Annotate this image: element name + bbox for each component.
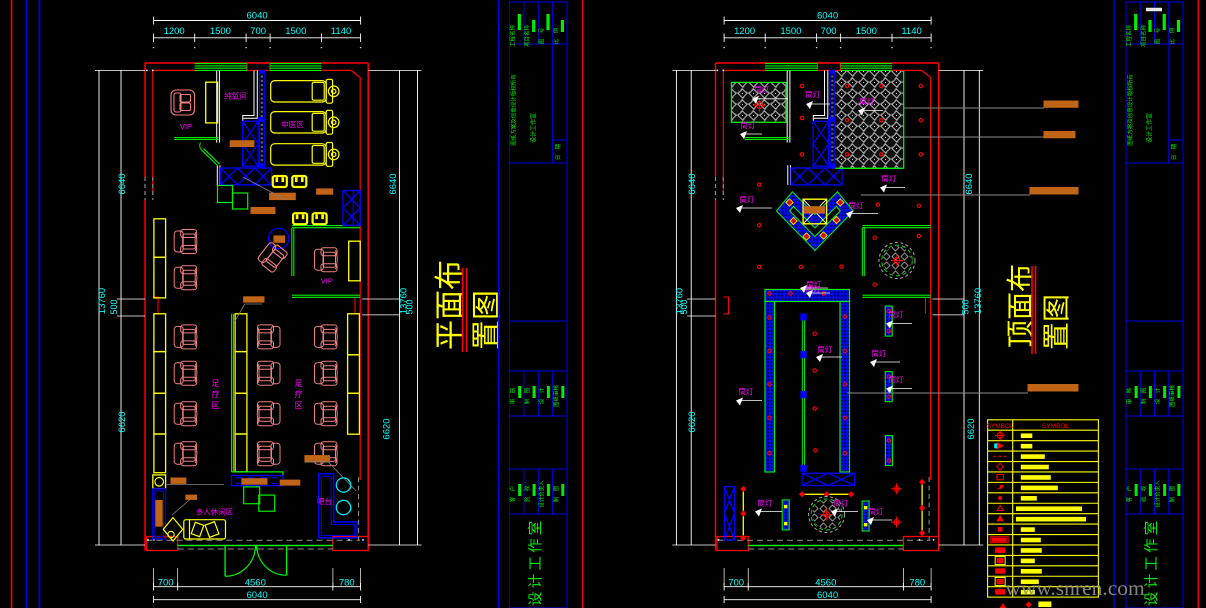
svg-text:6640: 6640 (687, 173, 698, 194)
svg-text:设计负责人: 设计负责人 (537, 480, 545, 508)
svg-text:筒灯: 筒灯 (758, 498, 773, 508)
svg-text:图 号: 图 号 (1154, 27, 1162, 44)
svg-text:图纸方案及创意设计版权所有: 图纸方案及创意设计版权所有 (510, 74, 518, 146)
svg-text:筒灯: 筒灯 (834, 498, 849, 508)
svg-text:吧台: 吧台 (317, 496, 332, 506)
svg-text:700: 700 (158, 577, 174, 588)
svg-text:6040: 6040 (247, 590, 268, 601)
svg-text:设 计: 设 计 (1154, 387, 1162, 404)
svg-text:500: 500 (405, 299, 415, 314)
svg-text:区: 区 (295, 401, 303, 410)
svg-text:6040: 6040 (817, 10, 838, 21)
svg-text:500: 500 (679, 299, 689, 314)
svg-text:工程名称: 工程名称 (509, 25, 517, 48)
svg-text:筒灯: 筒灯 (882, 173, 897, 183)
svg-text:筒灯: 筒灯 (741, 120, 756, 130)
svg-text:筒灯: 筒灯 (889, 374, 904, 384)
svg-text:6040: 6040 (817, 590, 838, 601)
svg-text:项目名称: 项目名称 (1139, 25, 1147, 48)
svg-text:审 核: 审 核 (509, 387, 517, 404)
svg-text:客 户: 客 户 (509, 486, 517, 503)
svg-text:6040: 6040 (247, 10, 268, 21)
svg-text:780: 780 (339, 577, 355, 588)
svg-text:4560: 4560 (815, 577, 836, 588)
svg-text:筒灯: 筒灯 (739, 386, 754, 396)
svg-text:6620: 6620 (117, 411, 128, 432)
svg-text:日 期: 日 期 (1171, 143, 1178, 160)
svg-text:1140: 1140 (331, 26, 351, 37)
svg-text:6620: 6620 (687, 411, 698, 432)
svg-text:验 收: 验 收 (1139, 485, 1147, 502)
svg-text:1200: 1200 (734, 26, 755, 37)
svg-text:VIP: VIP (180, 122, 192, 131)
svg-text:比 例: 比 例 (552, 27, 560, 44)
svg-text:筒灯: 筒灯 (889, 309, 904, 319)
svg-text:验 收: 验 收 (523, 485, 531, 502)
svg-text:审 核: 审 核 (1125, 387, 1133, 404)
svg-text:筒灯: 筒灯 (755, 84, 770, 94)
svg-text:筒灯: 筒灯 (818, 344, 833, 354)
svg-text:图 号: 图 号 (537, 27, 545, 44)
svg-text:设计工作室: 设计工作室 (1144, 518, 1161, 607)
svg-text:筒灯: 筒灯 (872, 348, 887, 358)
svg-text:6640: 6640 (388, 173, 399, 194)
svg-text:客 户: 客 户 (1125, 486, 1133, 503)
svg-text:纯氧间: 纯氧间 (224, 91, 247, 101)
svg-text:工程名称: 工程名称 (1125, 25, 1133, 48)
svg-text:疗: 疗 (295, 389, 303, 399)
svg-text:1500: 1500 (856, 26, 877, 37)
svg-text:13760: 13760 (97, 288, 108, 314)
svg-text:图纸审核: 图纸审核 (1168, 385, 1176, 408)
svg-text:SYMBOL: SYMBOL (1042, 423, 1069, 430)
svg-text:项目名称: 项目名称 (523, 25, 531, 48)
svg-text:www.snren.com: www.snren.com (1005, 576, 1145, 600)
svg-text:设 计: 设 计 (537, 387, 545, 404)
svg-text:1500: 1500 (210, 26, 231, 37)
svg-text:4560: 4560 (245, 577, 266, 588)
svg-text:制 图: 制 图 (1139, 387, 1147, 404)
svg-text:图纸审核: 图纸审核 (552, 385, 560, 408)
svg-text:780: 780 (909, 577, 925, 588)
svg-text:6620: 6620 (382, 418, 393, 439)
svg-text:700: 700 (821, 26, 837, 37)
svg-text:1140: 1140 (901, 26, 921, 37)
svg-text:VIP: VIP (321, 277, 333, 286)
svg-text:设计工作室: 设计工作室 (1146, 113, 1154, 143)
svg-text:6640: 6640 (117, 173, 128, 194)
svg-text:1500: 1500 (285, 26, 306, 37)
svg-text:筒灯: 筒灯 (806, 89, 821, 99)
svg-text:筒灯: 筒灯 (807, 279, 822, 289)
svg-text:设计工作室: 设计工作室 (529, 113, 537, 143)
svg-text:足: 足 (211, 379, 219, 388)
svg-text:比 例: 比 例 (1168, 27, 1176, 44)
svg-text:制 图: 制 图 (523, 387, 531, 404)
svg-text:13760: 13760 (973, 288, 984, 314)
svg-text:6640: 6640 (964, 173, 975, 194)
svg-text:筒灯: 筒灯 (860, 96, 875, 106)
svg-text:500: 500 (109, 299, 119, 314)
svg-text:筒灯: 筒灯 (869, 506, 884, 516)
svg-text:设计工作室: 设计工作室 (527, 518, 544, 607)
svg-text:筒灯: 筒灯 (740, 194, 755, 204)
svg-text:制 图: 制 图 (552, 485, 560, 502)
svg-text:疗: 疗 (211, 389, 219, 399)
svg-text:日 期: 日 期 (555, 143, 562, 160)
svg-text:区: 区 (211, 401, 219, 410)
svg-text:制 图: 制 图 (1168, 485, 1176, 502)
svg-text:SYMBOL: SYMBOL (987, 423, 1014, 430)
svg-text:图纸方案及创意设计版权所有: 图纸方案及创意设计版权所有 (1126, 74, 1134, 146)
svg-text:置图: 置图 (1041, 294, 1072, 350)
svg-text:筒灯: 筒灯 (849, 200, 864, 210)
svg-text:足: 足 (295, 379, 303, 388)
svg-text:设计负责人: 设计负责人 (1154, 480, 1162, 508)
svg-text:1200: 1200 (164, 26, 185, 37)
svg-text:多人休闲区: 多人休闲区 (196, 507, 234, 517)
svg-text:700: 700 (250, 26, 266, 37)
svg-text:500: 500 (961, 299, 971, 314)
svg-text:中医区: 中医区 (281, 119, 304, 129)
svg-text:6620: 6620 (966, 418, 977, 439)
svg-text:1500: 1500 (780, 26, 801, 37)
svg-text:700: 700 (728, 577, 744, 588)
